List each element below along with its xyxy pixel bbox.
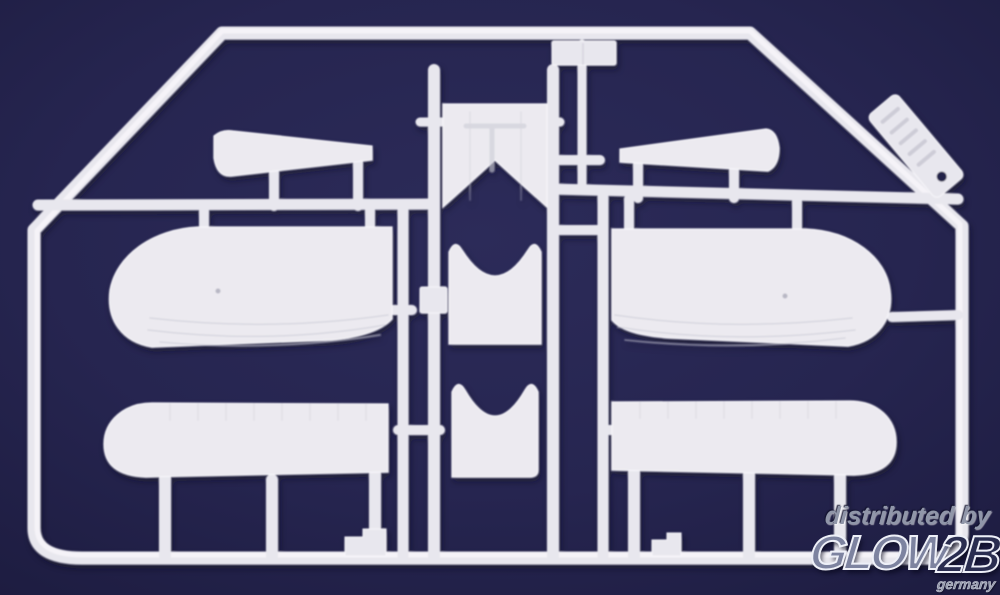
part-lower-wing-left: [104, 403, 388, 477]
part-upper-wing-left: [109, 227, 392, 347]
aircraft-parts: [104, 104, 896, 477]
part-upper-wing-right: [612, 229, 891, 346]
sprue-illustration: [0, 0, 1000, 595]
part-lower-wing-right: [612, 401, 896, 475]
model-kit-sprue-photo: distributed by GLOW2B germany: [0, 0, 1000, 595]
part-small-square: [420, 287, 447, 313]
